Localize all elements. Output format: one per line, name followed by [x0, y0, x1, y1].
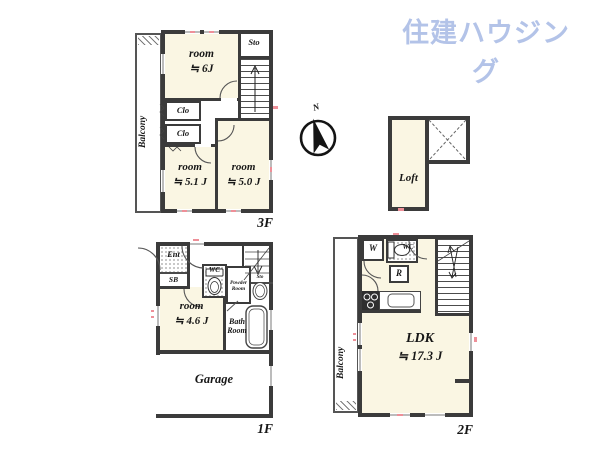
room-6j-area: ≒ 6J: [165, 63, 238, 76]
floor-2f-plan: Balcony: [330, 233, 480, 439]
loft-label: Loft: [390, 172, 427, 184]
window: [190, 242, 204, 246]
wall-segment: [469, 235, 473, 417]
wall-segment: [358, 413, 473, 417]
wall-segment: [435, 313, 473, 316]
company-logo: 住建ハウジング: [390, 11, 582, 45]
ldk-area: ≒ 17.3 J: [380, 349, 460, 363]
dimension-mark: [151, 316, 154, 318]
entrance-label: Ent: [160, 250, 187, 260]
floor-plan-page: 住建ハウジング N Balcony: [0, 0, 600, 450]
powder-room-label: Powder Room: [227, 280, 250, 292]
window: [269, 310, 273, 330]
window: [425, 413, 445, 417]
dimension-mark: [393, 233, 399, 235]
room-50-name: room: [218, 161, 269, 173]
room-46-area: ≒ 4.6 J: [160, 315, 223, 327]
wc-1f-label: WC: [202, 267, 227, 275]
room-51-area: ≒ 5.1 J: [163, 176, 217, 188]
room-51-name: room: [163, 161, 217, 173]
balcony-hatch: [336, 401, 356, 410]
floor-1f-plan: Ent SB WC Sto Powder Room Bath Room room…: [138, 238, 290, 438]
closet-2-label: Clo: [165, 129, 201, 139]
compass-north-label: N: [305, 99, 327, 115]
wall-segment: [269, 30, 273, 213]
stairs-2f: [438, 239, 469, 315]
dimension-mark: [182, 210, 187, 212]
dimension-mark: [270, 167, 272, 172]
compass-icon: [296, 110, 344, 164]
wall-segment: [362, 310, 421, 313]
stove: [362, 291, 379, 311]
wall-segment: [160, 286, 190, 289]
window: [358, 323, 362, 345]
wc-2f-label: WC: [398, 244, 418, 252]
dimension-mark: [353, 333, 356, 335]
window: [358, 349, 362, 371]
storage-3f-label: Sto: [239, 38, 269, 48]
dimension-mark: [273, 106, 278, 109]
dimension-mark: [353, 339, 356, 341]
floor-1f-label: 1F: [238, 421, 273, 436]
stairs-3f: [241, 59, 269, 118]
wall-segment: [187, 246, 190, 289]
shoebox-label: SB: [160, 276, 187, 284]
dimension-mark: [151, 310, 154, 312]
floor-3f-plan: Balcony: [133, 30, 279, 230]
wall-segment: [156, 414, 273, 418]
balcony-hatch: [138, 36, 159, 45]
dimension-mark: [398, 208, 404, 211]
dimension-mark: [231, 210, 236, 212]
washer-label: W: [362, 243, 384, 253]
fridge-label: R: [389, 268, 409, 278]
dimension-mark: [397, 414, 403, 416]
wall-segment: [455, 379, 473, 383]
kitchen-counter: [379, 291, 421, 310]
garage-label: Garage: [183, 372, 245, 386]
window: [469, 333, 473, 351]
ldk-name: LDK: [380, 331, 460, 347]
floor-2f-label: 2F: [438, 422, 473, 437]
bath-room-label: Bath Room: [224, 318, 250, 336]
wall-segment: [269, 242, 273, 418]
floor-3f-label: 3F: [238, 215, 273, 230]
dimension-mark: [474, 337, 477, 342]
room-6j-name: room: [165, 48, 238, 61]
void-area: [425, 116, 470, 164]
loft-room: [388, 116, 429, 211]
room-50-area: ≒ 5.0 J: [218, 176, 269, 188]
balcony-3f-label: Balcony: [138, 92, 159, 172]
closet-1-label: Clo: [165, 106, 201, 116]
room-46-name: room: [160, 300, 223, 312]
wall-segment: [156, 350, 273, 354]
window: [269, 366, 273, 386]
storage-1f-label: Sto: [252, 275, 268, 281]
dimension-mark: [209, 31, 214, 33]
dimension-mark: [193, 239, 199, 241]
loft-plan: Loft: [388, 116, 472, 214]
dimension-mark: [190, 31, 195, 33]
